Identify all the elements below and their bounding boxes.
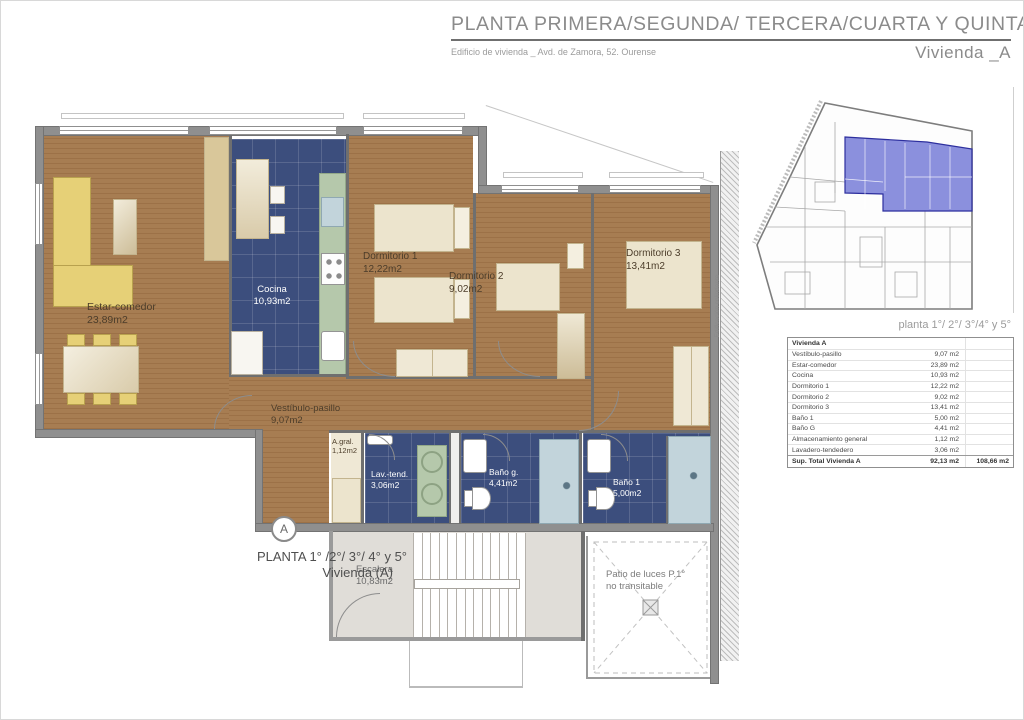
stair-flight-below (409, 641, 410, 687)
window-sill (609, 172, 704, 178)
overview-caption: planta 1°/ 2°/ 3°/4° y 5° (851, 319, 1011, 331)
wall (361, 433, 364, 524)
window (363, 126, 463, 135)
kitchen-sink (321, 197, 344, 227)
room-label-bath-1: Baño 15,00m2 (613, 477, 641, 498)
kitchen-table (236, 159, 269, 239)
wall (479, 127, 486, 193)
pillow (454, 207, 470, 249)
stair-flight-below (409, 686, 523, 688)
table-row: Dormitorio 29,02 m2 (788, 391, 1013, 402)
shower (668, 436, 711, 524)
wall (346, 134, 349, 379)
window (501, 185, 579, 193)
kitchen-sink (321, 331, 345, 361)
room-label-kitchen: Cocina10,93m2 (231, 284, 313, 308)
window (609, 185, 701, 193)
coffee-table (113, 199, 137, 255)
wall (329, 637, 585, 641)
wall (256, 430, 262, 530)
dining-chair (119, 393, 137, 405)
washer-drum (421, 451, 443, 473)
neighbour-hatch (720, 151, 739, 661)
bed (374, 277, 454, 323)
table-row: Cocina10,93 m2 (788, 370, 1013, 381)
dining-chair (93, 334, 111, 346)
entry-strip (451, 433, 459, 524)
neighbour-label: Edificación colindante (714, 246, 724, 366)
drawing-sheet: PLANTA PRIMERA/SEGUNDA/ TERCERA/CUARTA Y… (0, 0, 1024, 720)
cabinet (204, 137, 229, 261)
wall (581, 531, 585, 641)
window-sill (61, 113, 344, 119)
area-table: Vivienda A Vestíbulo-pasillo9,07 m2 Esta… (787, 337, 1014, 468)
header-subtitle-row: Edificio de vivienda _ Avd. de Zamora, 5… (451, 43, 1011, 63)
table-row: Estar-comedor23,89 m2 (788, 360, 1013, 371)
hallway-floor-south (259, 433, 329, 524)
table-row: Dormitorio 313,41 m2 (788, 402, 1013, 413)
table-row: Vestíbulo-pasillo9,07 m2 (788, 349, 1013, 360)
wall (449, 433, 451, 524)
room-label-bath-g: Baño g.4,41m2 (489, 467, 518, 488)
window-sill (503, 172, 583, 178)
dining-chair (67, 393, 85, 405)
storage-cabinet (332, 478, 361, 523)
stair-flight-below (522, 641, 523, 687)
dining-chair (67, 334, 85, 346)
wardrobe (557, 313, 585, 379)
wall (579, 433, 582, 524)
page-title: PLANTA PRIMERA/SEGUNDA/ TERCERA/CUARTA Y… (451, 13, 1011, 41)
toilet (588, 487, 614, 509)
bed (496, 263, 560, 311)
room-label-storage: A.gral.1,12m2 (332, 437, 357, 456)
floor-caption: PLANTA 1° /2°/ 3°/ 4° y 5° Vivienda (A) (181, 549, 407, 580)
window (35, 353, 43, 405)
washer-drum (421, 483, 443, 505)
wardrobe (396, 349, 468, 377)
kitchen-chair (270, 186, 285, 204)
dining-chair (93, 393, 111, 405)
unit-title: Vivienda _A (915, 43, 1011, 63)
building-address: Edificio de vivienda _ Avd. de Zamora, 5… (451, 43, 656, 57)
wall (256, 524, 713, 531)
window (209, 126, 337, 135)
patio-label: Patio de luces P.1°no transitable (606, 569, 685, 593)
shower (539, 439, 579, 524)
overview-plan (745, 87, 1013, 315)
dining-table (63, 346, 139, 393)
window-sill (363, 113, 465, 119)
bed (374, 204, 454, 252)
unit-marker: A (271, 516, 297, 542)
stair-handrail (414, 579, 520, 589)
table-row: Dormitorio 112,22 m2 (788, 381, 1013, 392)
table-row: Baño G4,41 m2 (788, 423, 1013, 434)
nightstand (567, 243, 584, 269)
room-label-hall: Vestíbulo-pasillo9,07m2 (271, 403, 340, 427)
room-label-bedroom3: Dormitorio 313,41m2 (626, 248, 680, 273)
stove (321, 253, 345, 285)
table-header-row: Vivienda A (788, 338, 1013, 349)
wall (459, 433, 461, 524)
room-label-laundry: Lav.-tend.3,06m2 (371, 469, 408, 490)
room-label-living: Estar-comedor23,89m2 (87, 301, 156, 327)
overview-frame-line (1013, 87, 1014, 313)
kitchen-chair (270, 216, 285, 234)
dining-chair (119, 334, 137, 346)
window (35, 183, 43, 245)
table-row: Almacenamiento general1,12 m2 (788, 434, 1013, 445)
wardrobe (673, 346, 709, 426)
wall (329, 430, 711, 433)
fridge (231, 331, 263, 375)
table-row: Lavadero-tendedero3,06 m2 (788, 444, 1013, 455)
patio (586, 536, 711, 679)
wall (36, 430, 262, 437)
window (59, 126, 189, 135)
room-label-bedroom1: Dormitorio 112,22m2 (363, 251, 417, 276)
table-total-row: Sup. Total Vivienda A 92,13 m2 108,66 m2 (788, 455, 1013, 467)
toilet (464, 487, 490, 509)
wall (329, 531, 333, 641)
table-row: Baño 15,00 m2 (788, 413, 1013, 424)
room-label-bedroom2: Dormitorio 29,02m2 (449, 271, 503, 296)
